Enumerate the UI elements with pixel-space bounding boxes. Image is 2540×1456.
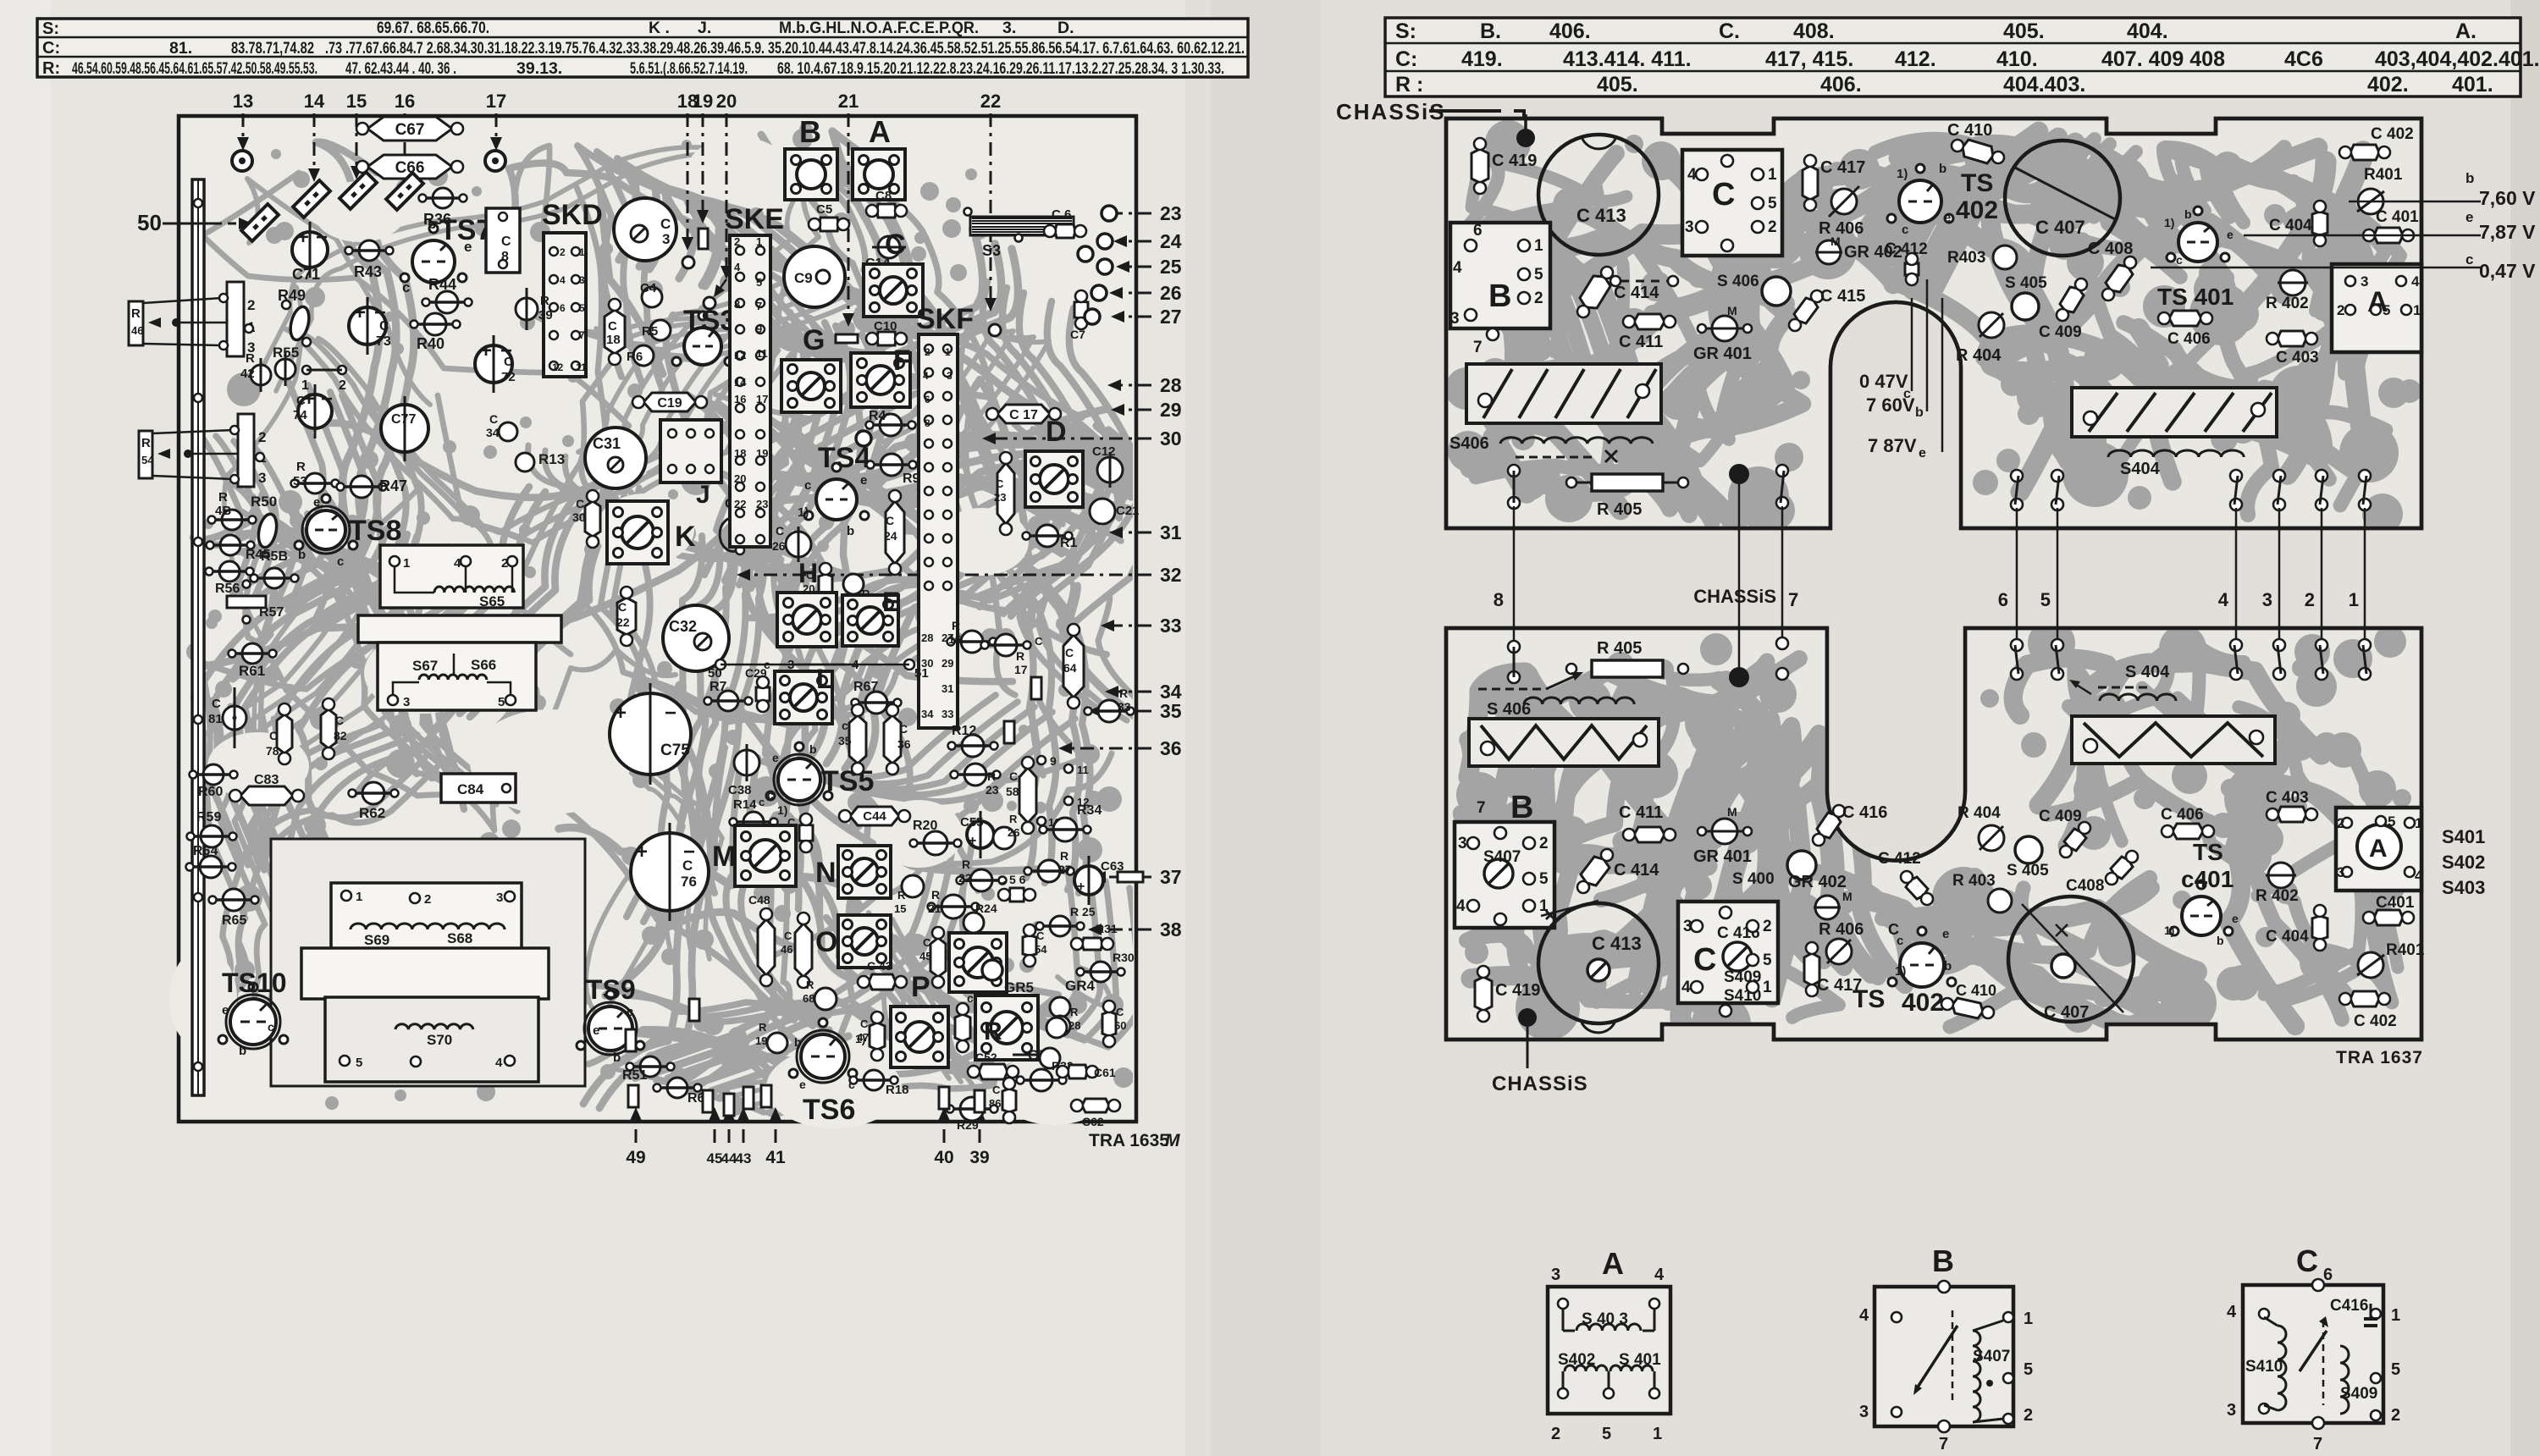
svg-text:c: c xyxy=(842,719,848,732)
svg-text:C4: C4 xyxy=(640,281,657,295)
svg-text:b: b xyxy=(428,216,436,232)
svg-text:R43: R43 xyxy=(354,263,382,280)
svg-text:36: 36 xyxy=(1160,737,1182,759)
svg-text:C: C xyxy=(923,936,931,949)
svg-text:C 410: C 410 xyxy=(1956,982,1996,999)
svg-text:4: 4 xyxy=(2227,1303,2237,1321)
svg-text:C 402: C 402 xyxy=(2371,125,2414,143)
svg-text:6: 6 xyxy=(1473,222,1483,240)
svg-text:O: O xyxy=(815,926,837,958)
svg-text:39: 39 xyxy=(538,308,553,323)
svg-text:R: R xyxy=(984,1018,1002,1045)
svg-text:R24: R24 xyxy=(975,902,997,915)
svg-text:4: 4 xyxy=(560,274,566,286)
svg-text:S407: S407 xyxy=(1483,848,1521,866)
svg-text:b: b xyxy=(847,524,854,538)
svg-text:+: + xyxy=(636,841,648,863)
svg-text:30: 30 xyxy=(921,657,933,670)
svg-text:35: 35 xyxy=(1160,700,1182,722)
svg-text:24: 24 xyxy=(884,529,897,543)
svg-text:R12: R12 xyxy=(952,724,976,738)
svg-text:3.: 3. xyxy=(1002,19,1016,37)
svg-text:R401: R401 xyxy=(2364,166,2403,184)
svg-text:24: 24 xyxy=(1160,230,1182,252)
svg-text:R: R xyxy=(1119,687,1128,700)
svg-text:S70: S70 xyxy=(427,1032,452,1048)
svg-text:C77: C77 xyxy=(391,412,416,427)
svg-text:58: 58 xyxy=(1006,785,1019,798)
svg-text:M.b.G.HL.N.O.A.F.C.E.P.QR.: M.b.G.HL.N.O.A.F.C.E.P.QR. xyxy=(779,19,979,37)
svg-text:14: 14 xyxy=(304,91,325,112)
svg-text:TS9: TS9 xyxy=(586,974,636,1005)
svg-text:GR 401: GR 401 xyxy=(1693,345,1752,363)
svg-text:R 403: R 403 xyxy=(1952,872,1996,890)
svg-text:4: 4 xyxy=(2411,273,2420,290)
svg-text:408.: 408. xyxy=(1793,19,1835,43)
svg-text:8: 8 xyxy=(734,298,740,311)
svg-text:b: b xyxy=(298,548,306,562)
svg-text:410.: 410. xyxy=(1996,47,2038,71)
svg-text:4C6: 4C6 xyxy=(2284,47,2323,71)
svg-text:R47: R47 xyxy=(379,477,407,494)
svg-text:11: 11 xyxy=(1077,764,1089,776)
svg-text:14: 14 xyxy=(734,376,747,389)
svg-text:M: M xyxy=(712,841,736,873)
svg-text:3: 3 xyxy=(496,891,503,905)
svg-text:81.: 81. xyxy=(169,39,192,58)
svg-text:402.: 402. xyxy=(2367,73,2409,97)
svg-text:TS 401: TS 401 xyxy=(2157,284,2234,310)
svg-text:R: R xyxy=(931,888,940,902)
svg-text:TS: TS xyxy=(2193,839,2223,865)
svg-text:M: M xyxy=(1842,890,1853,903)
svg-text:+: + xyxy=(1077,880,1085,894)
svg-text:E: E xyxy=(882,587,900,617)
svg-text:C32: C32 xyxy=(669,618,697,635)
svg-text:402: 402 xyxy=(1956,196,1998,224)
svg-text:R29: R29 xyxy=(957,1118,979,1132)
svg-text:1: 1 xyxy=(1534,237,1543,255)
svg-text:419.: 419. xyxy=(1461,47,1503,71)
svg-text:5: 5 xyxy=(1768,195,1777,212)
svg-text:81: 81 xyxy=(208,712,223,726)
svg-text:C: C xyxy=(576,497,584,510)
svg-text:GR5: GR5 xyxy=(1004,979,1034,995)
svg-text:7,87 V: 7,87 V xyxy=(2479,221,2536,243)
svg-text:3: 3 xyxy=(2361,273,2368,290)
svg-text:30: 30 xyxy=(1160,427,1182,449)
svg-text:11: 11 xyxy=(756,347,768,360)
svg-text:1): 1) xyxy=(1895,964,1906,979)
svg-text:6: 6 xyxy=(925,394,930,405)
svg-text:1): 1) xyxy=(798,505,809,520)
svg-text:S:: S: xyxy=(42,19,59,38)
svg-text:78: 78 xyxy=(266,744,279,758)
svg-text:C 5 6: C 5 6 xyxy=(997,873,1026,886)
svg-text:S 405: S 405 xyxy=(2005,274,2047,292)
svg-text:2: 2 xyxy=(2305,589,2315,610)
svg-text:R13: R13 xyxy=(538,451,565,467)
svg-text:403,404,402.401.: 403,404,402.401. xyxy=(2375,47,2540,71)
svg-text:1: 1 xyxy=(756,235,762,248)
svg-text:3: 3 xyxy=(579,274,585,286)
svg-text:R62: R62 xyxy=(359,805,385,821)
svg-text:C 404: C 404 xyxy=(2266,928,2309,946)
svg-text:b: b xyxy=(613,1051,621,1065)
svg-text:J: J xyxy=(696,481,710,509)
svg-text:R 402: R 402 xyxy=(2256,887,2299,905)
svg-text:20: 20 xyxy=(716,91,737,112)
svg-text:3: 3 xyxy=(1551,1266,1560,1284)
svg-text:C 414: C 414 xyxy=(1614,861,1659,880)
svg-text:4: 4 xyxy=(2415,868,2423,884)
svg-text:−: − xyxy=(665,702,676,725)
svg-text:2: 2 xyxy=(2337,302,2344,318)
svg-text:R57: R57 xyxy=(259,605,284,620)
svg-text:c: c xyxy=(804,478,811,493)
svg-text:38: 38 xyxy=(1160,918,1182,940)
svg-text:TRA 1637: TRA 1637 xyxy=(2336,1048,2423,1067)
svg-text:SKF: SKF xyxy=(916,303,974,335)
svg-text:C 406: C 406 xyxy=(2167,330,2211,348)
svg-text:C: C xyxy=(1116,1006,1124,1018)
svg-text:e: e xyxy=(860,473,867,488)
svg-text:c: c xyxy=(1903,387,1911,401)
svg-text:b: b xyxy=(1915,405,1924,420)
svg-text:C 17: C 17 xyxy=(1009,408,1038,422)
svg-text:33: 33 xyxy=(941,708,953,720)
svg-text:K .: K . xyxy=(649,19,670,37)
svg-text:C: C xyxy=(996,477,1004,490)
svg-text:C 413: C 413 xyxy=(1592,933,1642,954)
svg-text:R44: R44 xyxy=(428,276,456,293)
svg-text:C61: C61 xyxy=(1094,1066,1116,1079)
svg-text:M: M xyxy=(1727,805,1737,819)
svg-text:S 404: S 404 xyxy=(2125,663,2170,681)
svg-text:TS4: TS4 xyxy=(818,442,870,474)
svg-text:54: 54 xyxy=(1035,943,1047,956)
svg-text:R: R xyxy=(1060,849,1068,863)
svg-text:e: e xyxy=(2232,912,2239,925)
svg-text:S401: S401 xyxy=(2442,826,2485,847)
svg-text:35: 35 xyxy=(838,734,852,747)
svg-text:C: C xyxy=(1009,769,1018,783)
svg-text:3: 3 xyxy=(2227,1401,2236,1420)
svg-text:7: 7 xyxy=(1788,589,1798,610)
svg-text:R50: R50 xyxy=(251,494,277,510)
svg-text:5: 5 xyxy=(1534,266,1543,284)
svg-text:21: 21 xyxy=(928,902,941,915)
svg-text:47. 62.43.44 . 40. 36 .: 47. 62.43.44 . 40. 36 . xyxy=(345,59,456,78)
svg-text:C: C xyxy=(1065,646,1074,659)
svg-text:26: 26 xyxy=(1008,826,1019,839)
svg-text:C: C xyxy=(682,858,693,874)
svg-text:C: C xyxy=(2296,1244,2318,1278)
svg-text:23: 23 xyxy=(986,783,999,797)
svg-text:6: 6 xyxy=(1998,589,2008,610)
svg-text:A: A xyxy=(2369,835,2388,863)
svg-text:C 412: C 412 xyxy=(1885,240,1928,258)
svg-text:M: M xyxy=(1727,304,1737,317)
svg-text:4: 4 xyxy=(923,370,929,382)
svg-text:2: 2 xyxy=(339,378,346,393)
svg-text:C 407: C 407 xyxy=(2044,1003,2089,1022)
svg-text:15: 15 xyxy=(894,902,906,915)
svg-text:8: 8 xyxy=(1494,589,1504,610)
svg-text:34: 34 xyxy=(486,426,500,439)
svg-text:417, 415.: 417, 415. xyxy=(1765,47,1853,71)
svg-text:R67: R67 xyxy=(853,680,878,694)
svg-text:16: 16 xyxy=(734,393,746,405)
svg-text:7: 7 xyxy=(1939,1435,1948,1453)
svg-text:3: 3 xyxy=(1458,835,1467,852)
svg-text:TS10: TS10 xyxy=(222,968,286,998)
svg-text:17: 17 xyxy=(1014,663,1028,676)
svg-text:c401: c401 xyxy=(2181,866,2234,892)
svg-text:4: 4 xyxy=(495,1056,503,1070)
svg-text:32: 32 xyxy=(1160,564,1182,586)
svg-text:GR4: GR4 xyxy=(1065,978,1096,994)
svg-text:5: 5 xyxy=(2388,813,2395,830)
svg-text:C 408: C 408 xyxy=(2088,240,2133,258)
svg-text:23: 23 xyxy=(756,498,768,510)
svg-text:+: + xyxy=(969,834,976,848)
svg-text:C: C xyxy=(335,714,344,727)
svg-text:R49: R49 xyxy=(278,287,306,304)
svg-text:2: 2 xyxy=(1539,835,1549,852)
svg-text:R 405: R 405 xyxy=(1597,639,1642,658)
svg-text:28: 28 xyxy=(1068,1019,1080,1032)
svg-text:c: c xyxy=(2465,251,2473,267)
svg-text:C 402: C 402 xyxy=(2354,1012,2397,1030)
svg-text:e: e xyxy=(2465,209,2473,225)
svg-text:S406: S406 xyxy=(1449,434,1489,453)
svg-text:TS6: TS6 xyxy=(803,1094,855,1126)
svg-text:2: 2 xyxy=(734,235,740,248)
svg-text:R56: R56 xyxy=(215,582,240,596)
svg-text:R5B: R5B xyxy=(261,549,288,564)
svg-text:L: L xyxy=(816,664,833,694)
svg-text:F: F xyxy=(893,345,911,377)
svg-text:401.: 401. xyxy=(2452,73,2493,97)
svg-text:1: 1 xyxy=(2413,302,2421,318)
svg-text:C 409: C 409 xyxy=(2039,323,2082,341)
svg-text:e: e xyxy=(464,239,472,255)
svg-text:R: R xyxy=(952,619,960,632)
svg-text:50: 50 xyxy=(137,210,162,235)
svg-text:1): 1) xyxy=(855,1032,865,1045)
svg-text:3: 3 xyxy=(1683,918,1692,935)
svg-text:K: K xyxy=(675,521,696,553)
svg-text:GR 401: GR 401 xyxy=(1693,847,1752,866)
svg-text:H: H xyxy=(798,558,818,588)
svg-text:S409: S409 xyxy=(2340,1385,2377,1403)
svg-text:R7: R7 xyxy=(710,680,727,694)
svg-text:b: b xyxy=(2465,170,2474,186)
svg-text:22: 22 xyxy=(734,498,746,510)
svg-text:C: C xyxy=(501,234,511,249)
svg-text:5: 5 xyxy=(579,302,585,314)
svg-text:J.: J. xyxy=(698,19,711,37)
svg-text:M: M xyxy=(1165,1131,1180,1150)
svg-text:R18: R18 xyxy=(886,1083,909,1097)
svg-text:1): 1) xyxy=(1897,167,1908,181)
svg-text:R59: R59 xyxy=(196,810,221,825)
svg-text:c: c xyxy=(767,788,774,802)
svg-text:5: 5 xyxy=(756,276,762,289)
svg-text:−: − xyxy=(321,388,333,411)
svg-text:16: 16 xyxy=(395,91,415,112)
svg-text:1: 1 xyxy=(1768,166,1777,184)
svg-text:R40: R40 xyxy=(417,335,444,352)
svg-text:28: 28 xyxy=(1160,374,1182,396)
svg-text:404.403.: 404.403. xyxy=(2003,73,2085,97)
svg-text:C 404: C 404 xyxy=(2269,217,2312,234)
svg-text:D.: D. xyxy=(1057,19,1074,37)
svg-text:R401: R401 xyxy=(2386,941,2425,959)
svg-text:C: C xyxy=(885,229,906,261)
svg-text:C10: C10 xyxy=(874,319,897,334)
svg-text:+: + xyxy=(354,301,366,324)
svg-text:C 409: C 409 xyxy=(2039,808,2082,825)
svg-text:2: 2 xyxy=(1768,218,1777,236)
svg-text:46.54.60.59.48.56.45.64.61.65.: 46.54.60.59.48.56.45.64.61.65.57.42.50.5… xyxy=(72,59,317,78)
svg-text:TS5: TS5 xyxy=(821,765,874,797)
svg-text:405.: 405. xyxy=(2003,19,2045,43)
svg-text:S 40 3: S 40 3 xyxy=(1582,1310,1628,1328)
svg-text:22: 22 xyxy=(616,615,630,629)
svg-text:3: 3 xyxy=(403,695,410,709)
svg-text:b: b xyxy=(1939,162,1946,176)
svg-text:2: 2 xyxy=(424,892,431,907)
svg-text:C44: C44 xyxy=(863,809,886,824)
svg-text:C416: C416 xyxy=(2330,1297,2368,1315)
svg-text:C 419: C 419 xyxy=(1495,981,1540,1000)
svg-text:R4: R4 xyxy=(869,409,886,423)
svg-text:4: 4 xyxy=(1859,1306,1869,1325)
svg-text:40: 40 xyxy=(934,1148,953,1167)
svg-text:S67: S67 xyxy=(412,658,438,674)
svg-text:C: C xyxy=(886,514,894,527)
svg-text:B: B xyxy=(799,114,821,149)
svg-text:0,47 V: 0,47 V xyxy=(2479,260,2536,282)
svg-text:31: 31 xyxy=(1160,521,1182,543)
svg-text:7: 7 xyxy=(579,329,585,341)
svg-text:1: 1 xyxy=(1653,1425,1662,1443)
svg-text:2: 2 xyxy=(247,297,255,313)
svg-text:C 407: C 407 xyxy=(2035,217,2085,238)
svg-text:+: + xyxy=(480,339,492,362)
svg-text:M: M xyxy=(1830,234,1841,248)
svg-text:c: c xyxy=(268,1020,274,1034)
svg-text:21: 21 xyxy=(838,91,859,112)
svg-text:R: R xyxy=(1070,1006,1079,1018)
svg-text:C: C xyxy=(1036,929,1045,942)
svg-text:3: 3 xyxy=(662,231,670,247)
svg-text:27: 27 xyxy=(1160,306,1182,328)
svg-text:8: 8 xyxy=(925,417,930,429)
svg-text:C 401: C 401 xyxy=(2376,208,2419,226)
svg-text:C 403: C 403 xyxy=(2266,789,2309,807)
svg-text:1: 1 xyxy=(2391,1306,2400,1325)
svg-text:C62: C62 xyxy=(1082,1115,1104,1128)
svg-text:R 25: R 25 xyxy=(1070,905,1096,918)
svg-text:R 404: R 404 xyxy=(1956,346,2002,365)
svg-text:12: 12 xyxy=(734,349,746,361)
svg-text:2: 2 xyxy=(2024,1406,2033,1425)
svg-text:30: 30 xyxy=(572,510,586,524)
svg-text:1: 1 xyxy=(403,556,410,571)
svg-text:S 400: S 400 xyxy=(1732,870,1775,888)
svg-text:e: e xyxy=(2227,228,2234,241)
svg-text:S402: S402 xyxy=(2442,852,2485,873)
svg-text:C: C xyxy=(212,697,221,711)
svg-text:e: e xyxy=(313,495,320,510)
svg-text:39.13.: 39.13. xyxy=(516,59,562,78)
svg-text:S410: S410 xyxy=(2245,1358,2283,1376)
svg-text:2: 2 xyxy=(2337,815,2344,831)
svg-text:S407: S407 xyxy=(1973,1348,2010,1365)
svg-text:R: R xyxy=(131,306,141,321)
svg-text:R1: R1 xyxy=(1060,536,1078,550)
svg-text:C 416: C 416 xyxy=(1842,803,1887,822)
svg-text:26: 26 xyxy=(772,539,786,553)
svg-text:C 417: C 417 xyxy=(1820,158,1865,177)
svg-text:TS: TS xyxy=(1961,169,1993,197)
svg-text:b: b xyxy=(794,1035,802,1049)
svg-text:406.: 406. xyxy=(1549,19,1591,43)
svg-text:c: c xyxy=(759,796,765,808)
svg-text:1: 1 xyxy=(579,246,585,258)
svg-text:5: 5 xyxy=(2383,302,2390,318)
svg-text:B: B xyxy=(1510,790,1533,825)
svg-text:18: 18 xyxy=(606,333,621,347)
svg-text:R :: R : xyxy=(1395,73,1423,97)
svg-text:31: 31 xyxy=(941,682,953,695)
svg-text:20: 20 xyxy=(734,472,746,485)
svg-text:B: B xyxy=(1932,1244,1954,1278)
svg-text:402: 402 xyxy=(1902,989,1944,1017)
svg-text:R60: R60 xyxy=(198,785,223,799)
svg-text:P: P xyxy=(911,971,930,1003)
svg-text:e: e xyxy=(1919,446,1926,461)
svg-text:3: 3 xyxy=(2262,589,2272,610)
svg-text:B: B xyxy=(1488,279,1511,314)
svg-text:3: 3 xyxy=(947,370,952,382)
svg-text:R 406: R 406 xyxy=(1819,920,1864,939)
svg-text:R: R xyxy=(218,490,228,505)
svg-text:5: 5 xyxy=(1539,870,1549,888)
svg-text:29: 29 xyxy=(941,657,953,670)
svg-text:33: 33 xyxy=(1160,615,1182,637)
svg-text:11: 11 xyxy=(576,361,587,373)
svg-text:S404: S404 xyxy=(2120,460,2161,478)
svg-text:R 405: R 405 xyxy=(1597,500,1642,519)
svg-text:C 411: C 411 xyxy=(1619,333,1663,351)
svg-text:50: 50 xyxy=(708,666,722,681)
svg-text:C19: C19 xyxy=(657,396,682,411)
svg-text:C84: C84 xyxy=(457,781,484,797)
svg-text:S3: S3 xyxy=(982,242,1001,259)
svg-text:4B: 4B xyxy=(215,504,231,518)
svg-text:4: 4 xyxy=(454,556,461,571)
svg-text:C38: C38 xyxy=(728,783,752,797)
svg-text:R: R xyxy=(141,436,151,450)
svg-text:26: 26 xyxy=(1160,282,1182,304)
svg-text:C48: C48 xyxy=(748,893,770,907)
svg-text:39: 39 xyxy=(969,1148,989,1167)
svg-text:12: 12 xyxy=(552,361,564,373)
